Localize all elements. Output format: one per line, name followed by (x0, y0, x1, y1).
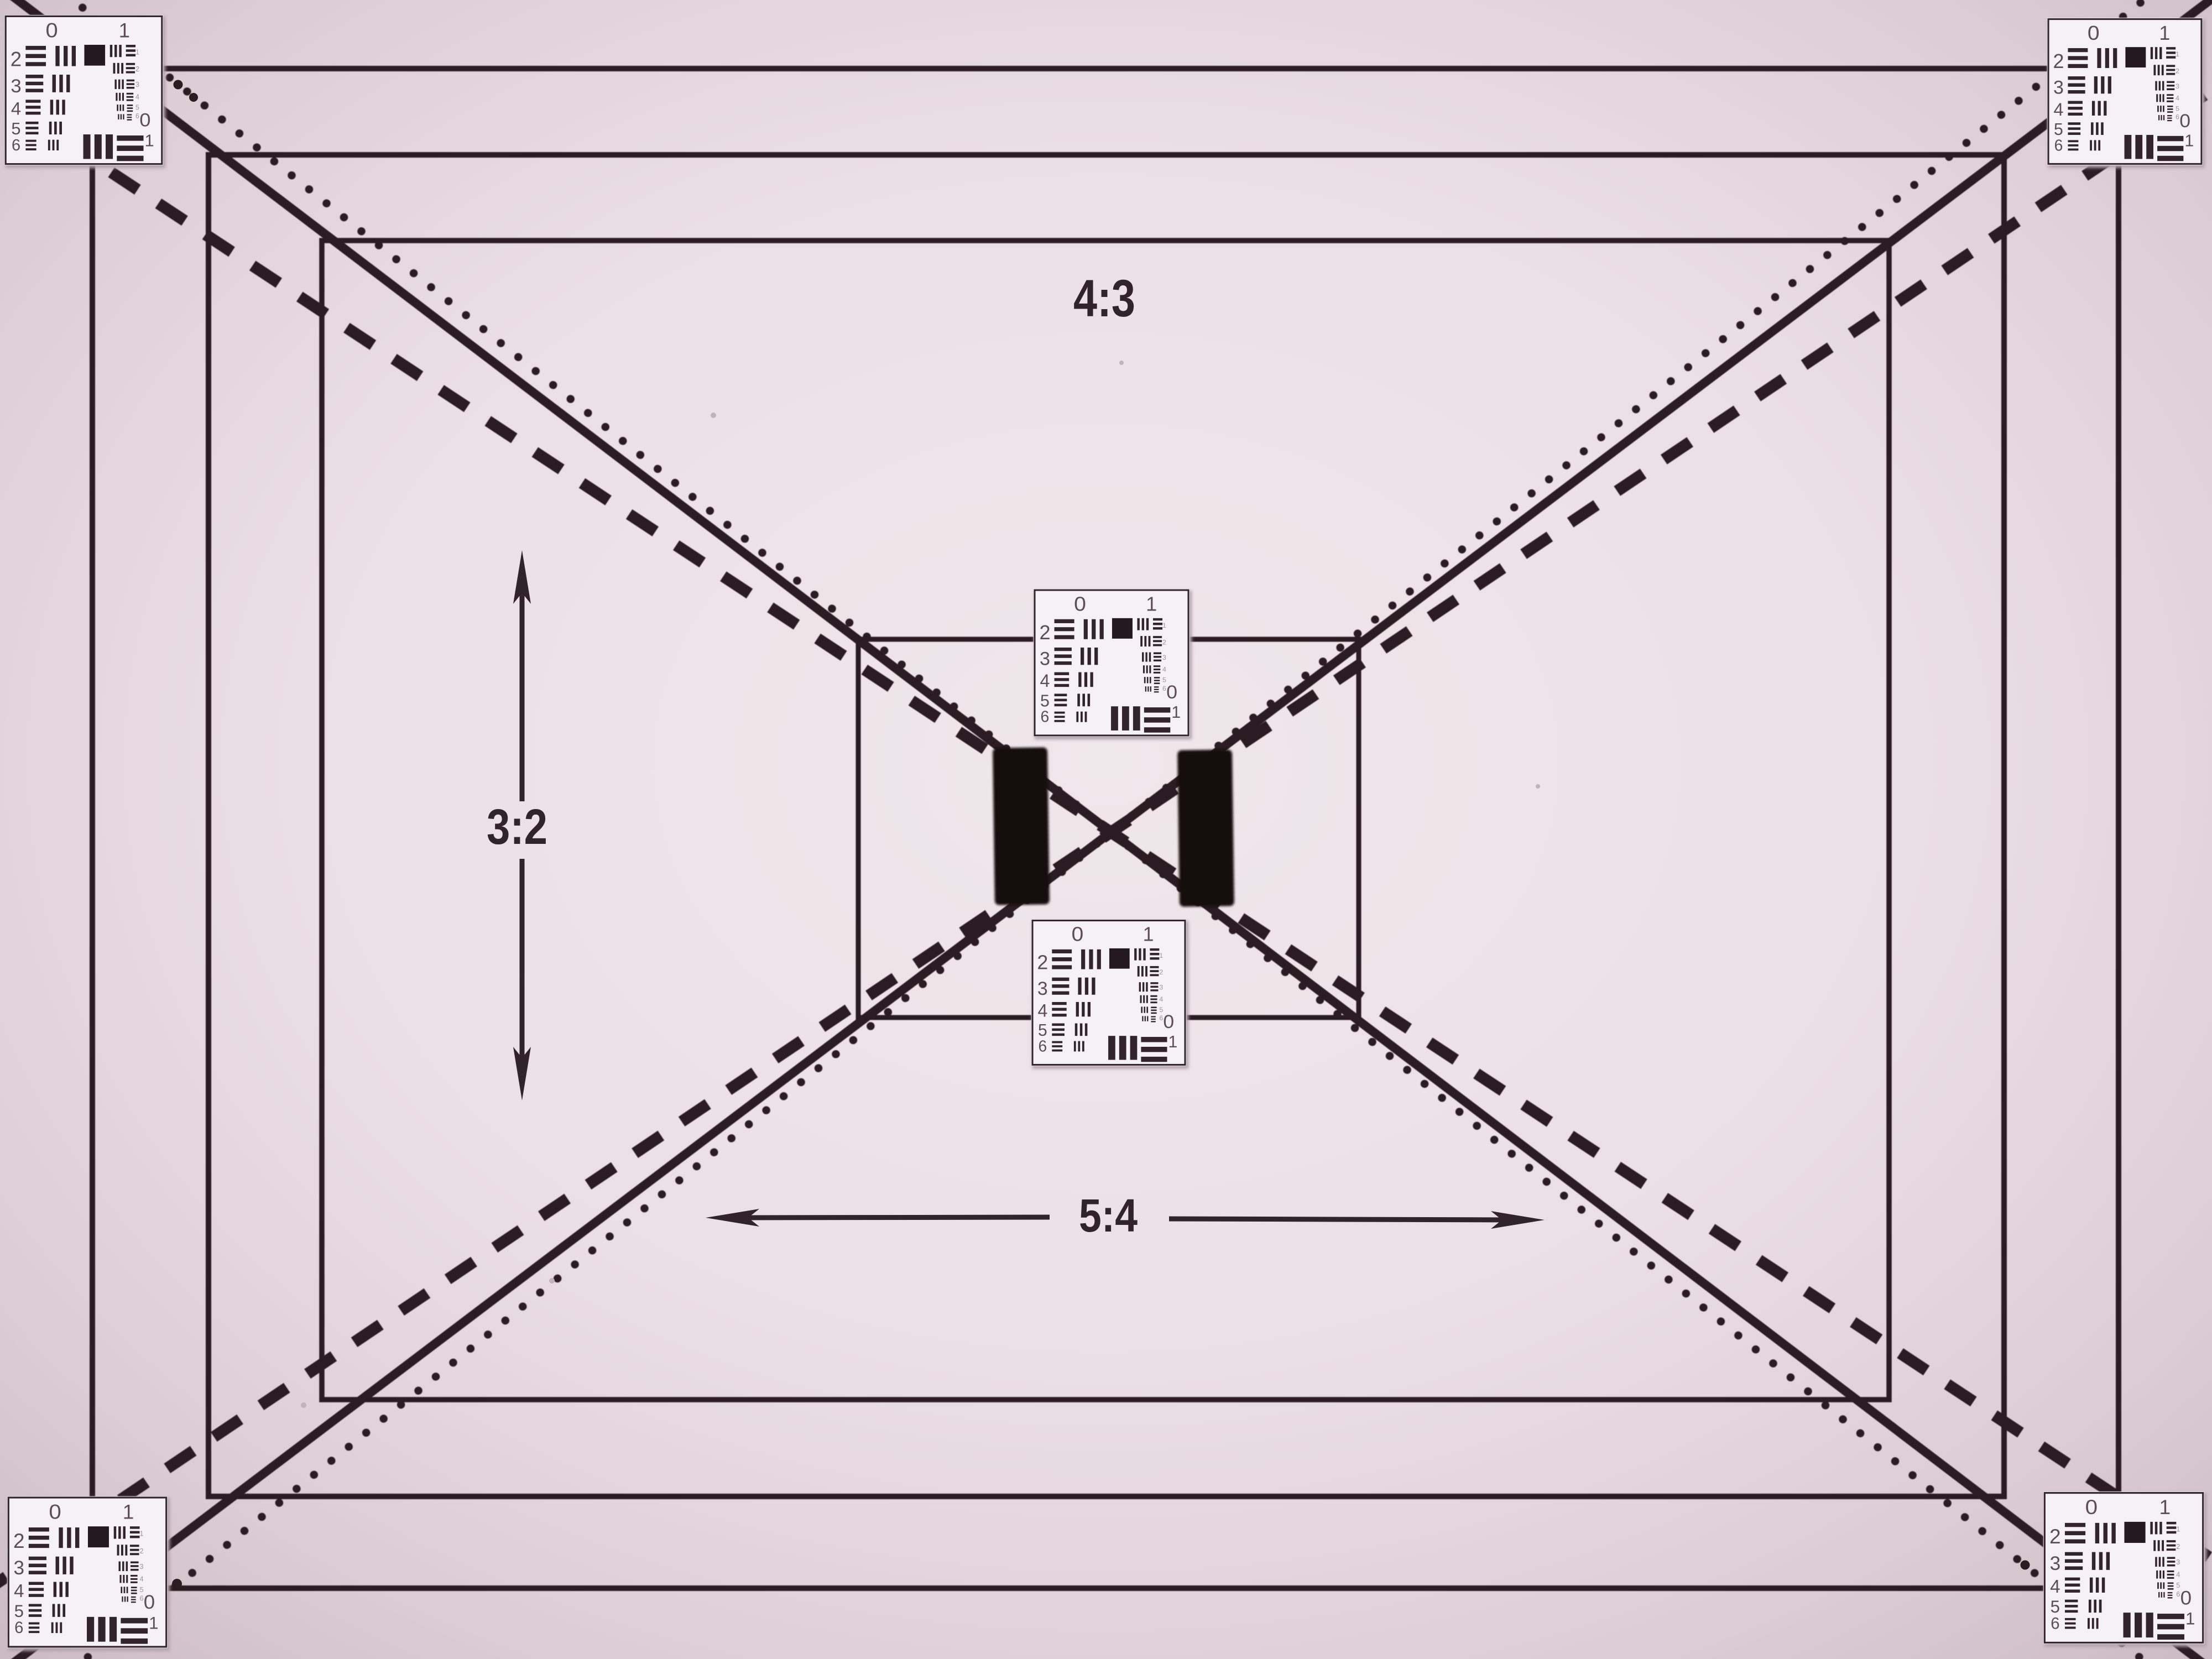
svg-text:4:3: 4:3 (1073, 269, 1135, 328)
svg-text:5:4: 5:4 (1079, 1190, 1138, 1241)
svg-text:3:2: 3:2 (487, 800, 547, 855)
